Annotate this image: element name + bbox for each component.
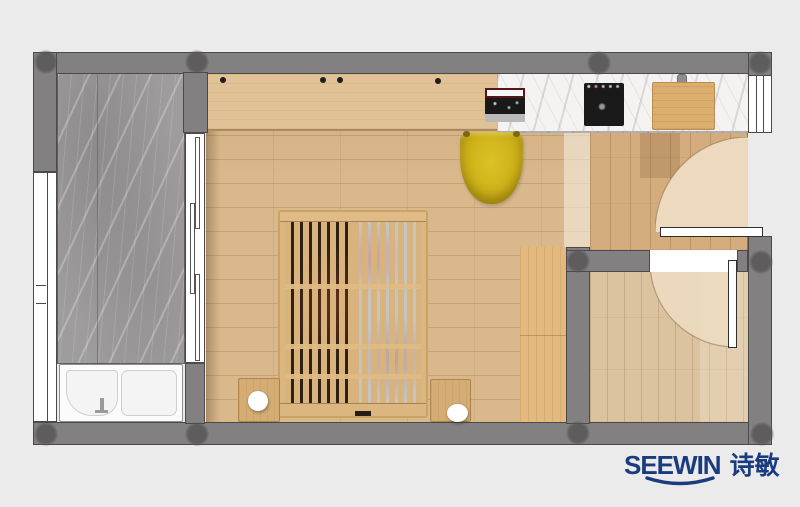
- desk-grommet-3: [337, 77, 343, 83]
- side-room-door-leaf: [728, 260, 737, 348]
- balcony-sliding-door: [185, 133, 205, 363]
- column-mid-1: [566, 249, 590, 273]
- column-mid-2: [749, 250, 773, 274]
- laptop-base: [485, 114, 525, 122]
- balcony-marble-floor: [57, 72, 185, 364]
- column-bottom-2: [185, 422, 209, 446]
- sliding-door-panel-1: [195, 137, 200, 229]
- window-left-tick-2: [36, 303, 46, 304]
- window-left: [33, 172, 57, 422]
- bed-crossbar-3: [285, 374, 421, 379]
- entry-door-leaf: [660, 227, 763, 237]
- bed-footboard-rail: [280, 403, 426, 416]
- bed-crossbar-2: [285, 344, 421, 349]
- bathtub-basin-section: [121, 370, 177, 416]
- window-left-mullion: [47, 173, 48, 421]
- window-right: [748, 75, 772, 133]
- column-top-2: [185, 50, 209, 74]
- bed-crossbar-1: [285, 284, 421, 289]
- wall-top: [33, 52, 772, 74]
- chair-armrest-right: [513, 131, 520, 137]
- bathtub-faucet-spout: [95, 410, 108, 413]
- induction-cooktop: [584, 83, 624, 126]
- desk-grommet-1: [220, 77, 226, 83]
- column-bottom-4: [750, 422, 774, 446]
- wall-side-room-top-right: [737, 250, 748, 272]
- bathtub: [59, 364, 183, 422]
- sliding-door-panel-3: [195, 274, 200, 361]
- brand-swoosh-icon: [644, 476, 716, 487]
- column-bottom-1: [34, 422, 58, 446]
- laptop-keyboard: [485, 98, 525, 114]
- column-bottom-3: [566, 421, 590, 445]
- bathtub-seat-section: [66, 370, 118, 416]
- wardrobe-aisle-strip: [520, 247, 566, 424]
- desk-surface: [206, 74, 497, 131]
- window-right-mullion-2: [763, 76, 764, 132]
- window-right-mullion-1: [756, 76, 757, 132]
- wall-stub-balcony-bottom: [185, 363, 205, 424]
- side-room-door-swing-arc: [650, 262, 735, 347]
- table-lamp-right: [447, 404, 468, 422]
- laptop-screen: [485, 88, 525, 98]
- wall-side-room-left: [566, 247, 590, 424]
- column-top-4: [748, 51, 772, 75]
- bed-headboard-rail: [280, 212, 426, 222]
- column-top-3: [587, 51, 611, 75]
- desk-grommet-2: [320, 77, 326, 83]
- entry-door-swing-arc: [655, 137, 748, 232]
- chair-armrest-left: [463, 131, 470, 137]
- window-left-tick-1: [36, 285, 46, 286]
- floor-plan-canvas: SEEWIN 诗敏: [0, 0, 800, 507]
- brand-wordmark-chinese: 诗敏: [730, 454, 780, 479]
- table-lamp-left: [248, 391, 268, 411]
- column-top-1: [34, 50, 58, 74]
- wall-bottom: [33, 422, 772, 445]
- desk-grommet-4: [435, 78, 441, 84]
- brand-wordmark-latin: SEEWIN: [624, 452, 721, 478]
- brand-logo: SEEWIN 诗敏: [624, 452, 780, 479]
- cutting-board: [652, 82, 715, 130]
- bed-footboard-handle: [355, 411, 371, 416]
- bed-slats: [285, 222, 421, 403]
- side-room-threshold: [650, 250, 737, 272]
- slatted-bed: [278, 210, 428, 418]
- wall-stub-balcony-top: [183, 72, 208, 133]
